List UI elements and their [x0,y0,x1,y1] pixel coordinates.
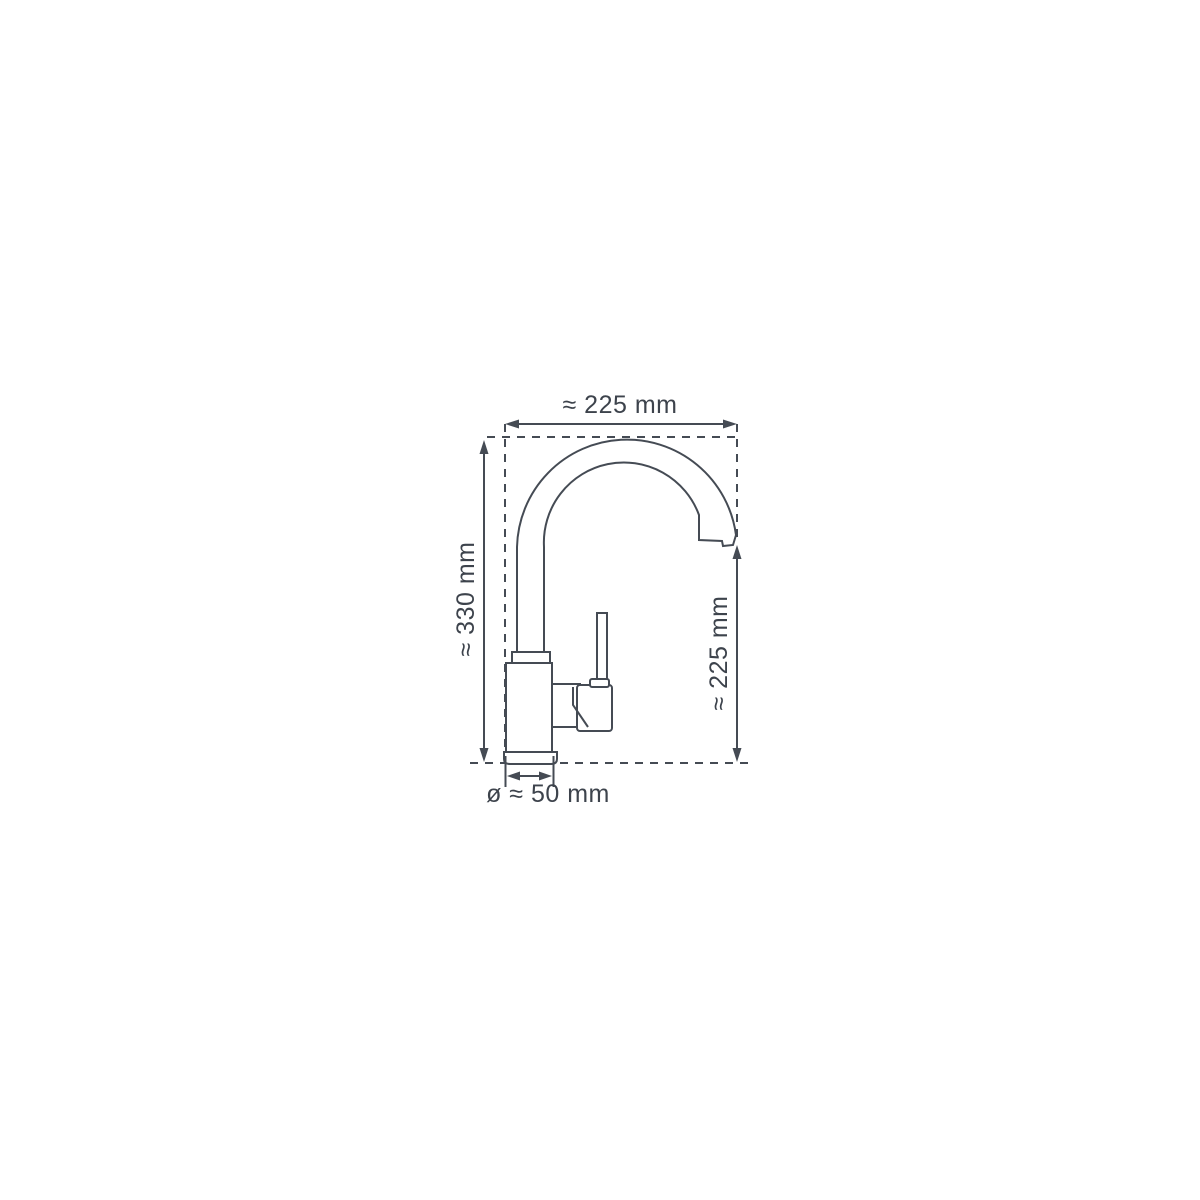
riser-collar [512,652,550,663]
left-height-arrowhead-bottom [480,748,489,762]
faucet-body [506,663,552,753]
top-width-label: ≈ 225 mm [563,391,678,419]
right-height-arrowhead-top [733,545,742,559]
left-height-label: ≈ 330 mm [452,542,480,657]
handle-lever-foot [590,679,609,687]
handle-lever [597,613,607,683]
handle-arm [552,684,580,727]
top-width-arrowhead-left [505,420,519,429]
faucet-technical-drawing: ≈ 225 mm ≈ 330 mm ≈ 225 mm ø ≈ 50 mm [0,0,1200,1200]
left-height-arrowhead-top [480,440,489,454]
right-height-label: ≈ 225 mm [705,596,733,711]
base-diameter-label: ø ≈ 50 mm [486,780,610,808]
base-flange [504,752,557,764]
faucet-outline [504,440,736,764]
top-width-arrowhead-right [723,420,737,429]
dimension-diagram-canvas: ≈ 225 mm ≈ 330 mm ≈ 225 mm ø ≈ 50 mm [0,0,1200,1200]
right-height-arrowhead-bottom [733,748,742,762]
spout-and-riser-outline [517,440,736,655]
cartridge-housing [577,685,612,731]
